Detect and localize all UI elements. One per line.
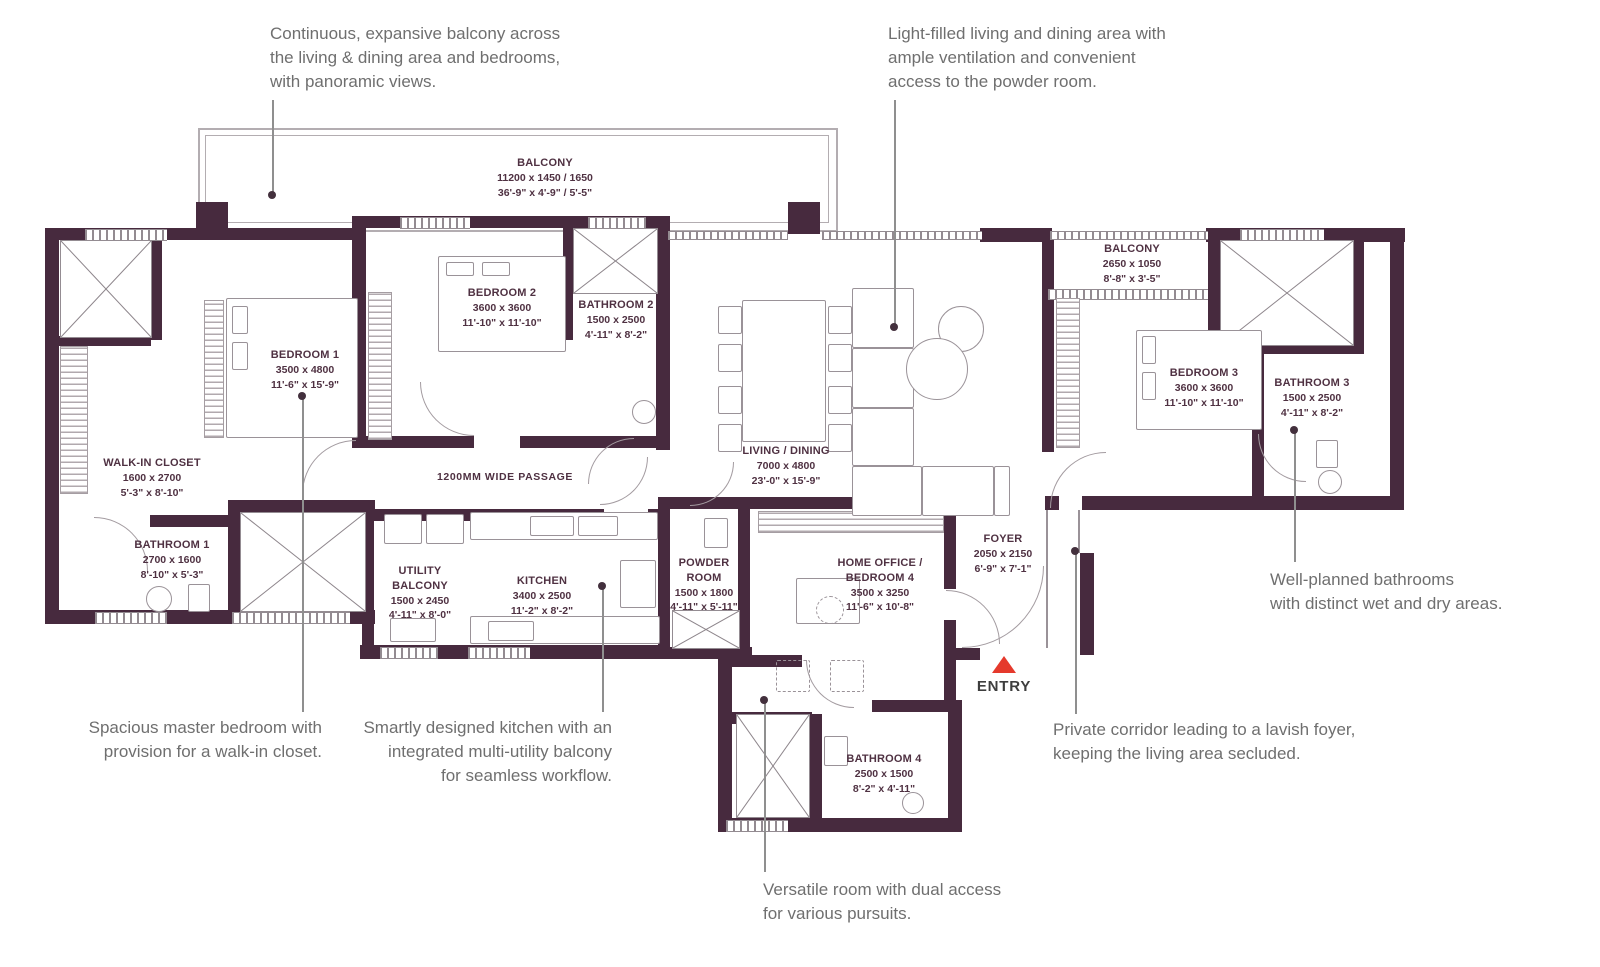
wall [1082, 496, 1404, 510]
corridor-line [1078, 510, 1080, 553]
furniture [994, 466, 1010, 516]
room-label-walk-in-closet: WALK-IN CLOSET 1600 x 2700 5'-3" x 8'-10… [103, 456, 201, 500]
window [380, 647, 438, 659]
room-label-living-dining: LIVING / DINING 7000 x 4800 23'-0" x 15'… [742, 444, 829, 488]
note-kitchen: Smartly designed kitchen with an integra… [340, 716, 612, 788]
room-label-bedroom-3: BEDROOM 3 3600 x 3600 11'-10" x 11'-10" [1164, 366, 1243, 410]
furniture [232, 342, 248, 370]
furniture [578, 516, 618, 536]
window [400, 217, 470, 229]
wall [1042, 240, 1054, 452]
leader-dot-versatile [760, 696, 768, 704]
shaft-cross [672, 610, 740, 649]
entry-arrow-icon [992, 656, 1016, 673]
note-master-bedroom: Spacious master bedroom with provision f… [56, 716, 322, 764]
room-label-bathroom-3: BATHROOM 3 1500 x 2500 4'-11" x 8'-2" [1274, 376, 1349, 420]
wall [520, 436, 670, 448]
note-balcony: Continuous, expansive balcony across the… [270, 22, 560, 94]
wall [948, 700, 962, 832]
note-versatile-room: Versatile room with dual access for vari… [763, 878, 1053, 926]
leader-dot-balcony [268, 191, 276, 199]
window [1050, 231, 1208, 240]
furniture [922, 466, 994, 516]
room-label-balcony-right: BALCONY 2650 x 1050 8'-8" x 3'-5" [1103, 242, 1161, 286]
room-label-bedroom-2: BEDROOM 2 3600 x 3600 11'-10" x 11'-10" [462, 286, 541, 330]
fixture-circle [146, 586, 172, 612]
wall [45, 228, 59, 624]
note-living: Light-filled living and dining area with… [888, 22, 1166, 94]
furniture [1142, 336, 1156, 364]
room-label-balcony-top: BALCONY 11200 x 1450 / 1650 36'-9" x 4'-… [497, 156, 593, 200]
wall [810, 714, 822, 818]
furniture [384, 514, 422, 544]
furniture [1316, 440, 1338, 468]
chair [776, 660, 810, 692]
door-arc [1050, 452, 1106, 508]
window [468, 647, 530, 659]
wall [718, 655, 732, 832]
door-arc [420, 382, 474, 436]
wall [656, 216, 670, 450]
corridor-line [1046, 510, 1048, 648]
leader-line-master [302, 396, 304, 712]
room-label-foyer: FOYER 2050 x 2150 6'-9" x 7'-1" [974, 532, 1032, 576]
room-label-kitchen: KITCHEN 3400 x 2500 11'-2" x 8'-2" [511, 574, 573, 618]
furniture [188, 584, 210, 612]
door-arc [600, 457, 648, 505]
leader-dot-kitchen [598, 582, 606, 590]
furniture [852, 348, 914, 408]
door-arc [1258, 434, 1306, 482]
leader-line-balcony [272, 100, 274, 194]
window [95, 612, 167, 624]
furniture [530, 516, 574, 536]
furniture [718, 386, 742, 414]
furniture [718, 344, 742, 372]
floor-plan: BALCONY 11200 x 1450 / 1650 36'-9" x 4'-… [0, 0, 1600, 967]
furniture [482, 262, 510, 276]
furniture [742, 300, 826, 442]
shaft-cross [60, 240, 152, 338]
wardrobe-hatch [1056, 298, 1080, 448]
room-label-utility-balcony: UTILITY BALCONY 1500 x 2450 4'-11" x 8'-… [380, 564, 460, 623]
furniture [852, 288, 914, 348]
wall [1390, 228, 1404, 510]
furniture [718, 306, 742, 334]
furniture [852, 408, 914, 466]
window [822, 231, 982, 240]
room-label-bedroom-1: BEDROOM 1 3500 x 4800 11'-6" x 15'-9" [271, 348, 339, 392]
room-label-powder-room: POWDER ROOM 1500 x 1800 4'-11" x 5'-11" [669, 556, 739, 615]
window [668, 231, 788, 240]
note-bathrooms: Well-planned bathrooms with distinct wet… [1270, 568, 1560, 616]
door-arc [302, 440, 356, 494]
leader-line-bathrooms [1294, 430, 1296, 562]
furniture [828, 386, 852, 414]
door-arc [806, 660, 854, 708]
room-label-bathroom-2: BATHROOM 2 1500 x 2500 4'-11" x 8'-2" [578, 298, 653, 342]
room-label-bathroom-4: BATHROOM 4 2500 x 1500 8'-2" x 4'-11" [846, 752, 921, 796]
wall [228, 512, 240, 624]
window [726, 820, 788, 832]
leader-dot-corridor [1071, 547, 1079, 555]
shaft-cross [573, 228, 658, 294]
furniture [446, 262, 474, 276]
wall [1080, 553, 1094, 655]
wall [944, 648, 980, 660]
furniture [828, 344, 852, 372]
shaft-cross [736, 714, 810, 818]
furniture [852, 466, 922, 516]
wall [788, 202, 820, 234]
entry-label: ENTRY [977, 678, 1031, 695]
leader-dot-master [298, 392, 306, 400]
furniture [426, 514, 464, 544]
passage-label: 1200MM WIDE PASSAGE [437, 471, 573, 483]
furniture [828, 424, 852, 452]
leader-line-living [894, 100, 896, 326]
wall [150, 515, 242, 527]
furniture [828, 306, 852, 334]
fixture-circle [906, 338, 968, 400]
fixture-circle [632, 400, 656, 424]
room-label-home-office-bedroom-4: HOME OFFICE / BEDROOM 4 3500 x 3250 11'-… [820, 556, 940, 615]
furniture [232, 306, 248, 334]
leader-dot-living [890, 323, 898, 331]
furniture [620, 560, 656, 608]
leader-line-kitchen [602, 586, 604, 712]
wardrobe-hatch [60, 346, 88, 494]
wardrobe-hatch [204, 300, 224, 438]
leader-line-versatile [764, 700, 766, 872]
leader-line-corridor [1075, 552, 1077, 714]
leader-dot-bathrooms [1290, 426, 1298, 434]
furniture [704, 518, 728, 548]
note-corridor: Private corridor leading to a lavish foy… [1053, 718, 1413, 766]
wall [196, 202, 228, 234]
window [232, 612, 350, 624]
furniture [824, 736, 848, 766]
wardrobe-hatch [368, 292, 392, 440]
fixture-circle [1318, 470, 1342, 494]
furniture [718, 424, 742, 452]
furniture [488, 621, 534, 641]
furniture [1142, 372, 1156, 400]
room-label-bathroom-1: BATHROOM 1 2700 x 1600 8'-10" x 5'-3" [134, 538, 209, 582]
